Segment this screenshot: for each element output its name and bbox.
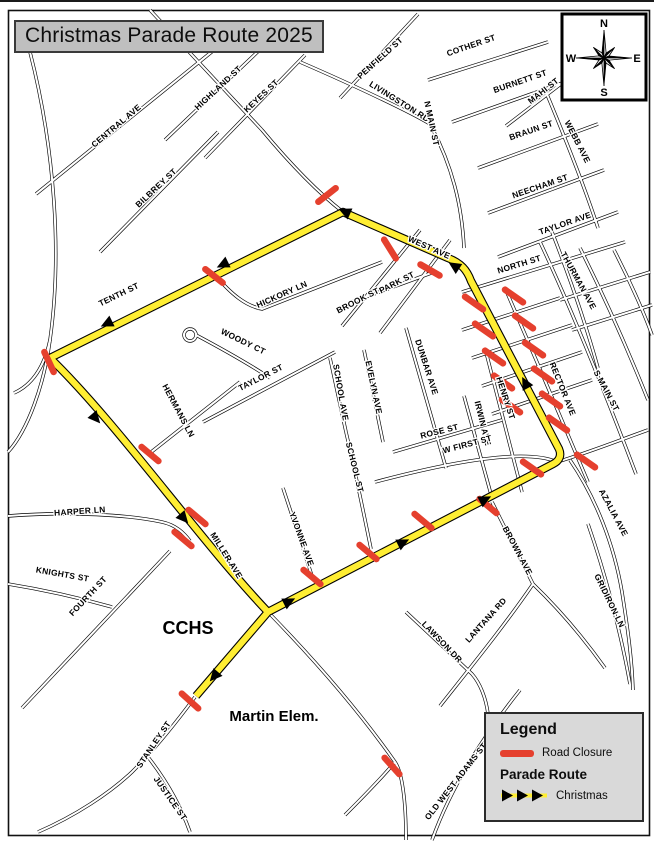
compass-letter-s: S [600,87,607,99]
road-fill [345,762,395,815]
street-labels-layer: CENTRAL AVEHIGHLAND STKEYES STBILBREY ST… [35,32,630,823]
christmas-route-swatch-icon [500,789,548,802]
street-label: LIVINGSTON RD [368,79,432,124]
road-closure-mark [415,514,432,528]
road-casing [533,584,605,668]
street-label: RECTOR AVE [548,361,579,418]
street-label: OLD WEST ADAMS ST [422,740,489,822]
compass-rose: NSWE [562,14,646,100]
page-top-edge [0,0,654,2]
place-label: Martin Elem. [229,708,318,725]
street-label: BROWN AVE [501,524,535,576]
road-fill [184,329,196,341]
street-label: N MAIN ST [422,100,441,147]
street-label: BROOK ST [335,285,382,315]
road-casing [262,130,343,212]
street-label: TAYLOR ST [237,362,286,393]
map-page: CENTRAL AVEHIGHLAND STKEYES STBILBREY ST… [0,0,654,842]
street-label: TENTH ST [97,280,141,308]
street-label: COTHER ST [445,32,497,58]
street-label: SCHOOL AVE [331,363,351,421]
street-label: BRAUN ST [508,118,555,143]
place-label: CCHS [162,618,213,638]
legend: Legend Road Closure Parade Route Christm… [484,712,644,822]
compass-letter-n: N [600,18,608,30]
compass-letter-e: E [633,53,640,65]
parade-route-heading: Parade Route [500,767,642,782]
legend-heading: Legend [500,721,642,739]
street-label: PENFIELD ST [355,34,405,80]
christmas-route-label: Christmas [556,790,608,802]
road-fill [8,514,190,541]
street-label: LAWSON DR [420,619,465,665]
road-fill [268,612,406,840]
compass-letter-w: W [566,53,577,65]
street-label: LANTANA RD [463,595,509,644]
street-label: YVONNE AVE [287,510,316,567]
street-label: SCHOOL ST [344,441,366,494]
road-closure-mark [515,316,533,329]
road-casing [268,612,406,840]
road-closure-swatch-icon [500,750,534,757]
street-label: BILBREY ST [133,166,179,210]
street-label: KNIGHTS ST [35,564,90,583]
road-casing [38,697,195,832]
street-label: KEYES ST [242,77,281,115]
road-fill [38,697,195,832]
road-fill [375,430,648,482]
road-fill [203,352,335,422]
road-closure-mark [384,240,396,259]
street-label: CENTRAL AVE [89,102,143,149]
road-fill [100,132,218,252]
street-label: AZALIA AVE [597,487,630,538]
map-title: Christmas Parade Route 2025 [14,20,324,53]
street-label: EVELYN AVE [363,360,384,415]
street-label: S MAIN ST [592,368,622,413]
street-label: JUSTICE ST [152,774,190,822]
road-casing [8,514,190,541]
road-closure-label: Road Closure [542,747,612,759]
